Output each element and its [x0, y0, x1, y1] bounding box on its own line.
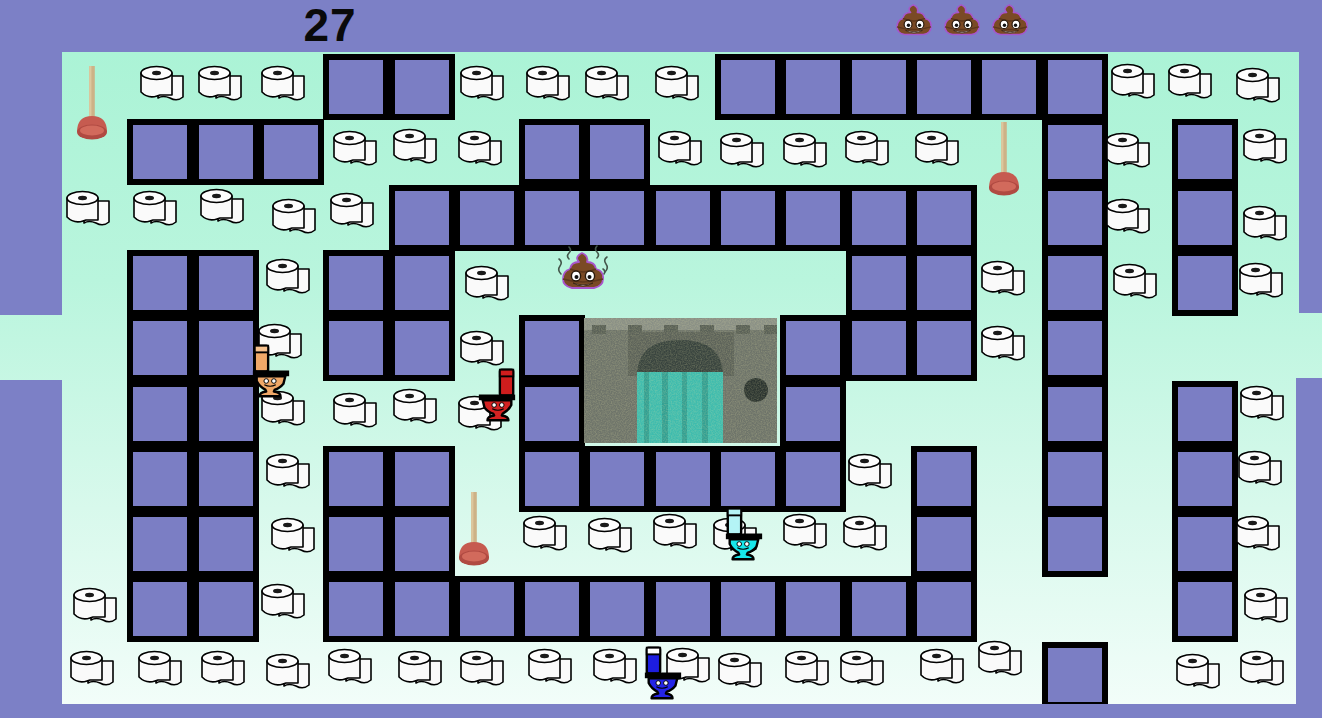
wall-block: [127, 315, 193, 381]
wall-block: [519, 381, 585, 447]
life-poop-icon: [943, 4, 981, 38]
wall-block: [193, 119, 259, 185]
wall-block: [519, 119, 585, 185]
toilet-paper-pellet: [782, 132, 828, 172]
game-screen: 27: [0, 0, 1322, 718]
wall-block: [519, 185, 585, 251]
toilet-paper-pellet: [1239, 650, 1285, 690]
toilet-paper-pellet: [197, 65, 243, 105]
toilet-paper-pellet: [1235, 515, 1281, 555]
enemy-cyan-toilet: [723, 505, 765, 562]
wall-block: [780, 576, 846, 642]
toilet-paper-pellet: [137, 650, 183, 690]
toilet-paper-pellet: [327, 648, 373, 688]
toilet-paper-pellet: [392, 388, 438, 428]
wall-block: [127, 446, 193, 512]
toilet-paper-pellet: [329, 192, 375, 232]
toilet-paper-pellet: [657, 130, 703, 170]
toilet-paper-pellet: [260, 65, 306, 105]
wall-block: [780, 315, 846, 381]
wall-block: [1172, 250, 1238, 316]
enemy-orange-toilet: [250, 342, 292, 399]
player-poop: [551, 243, 615, 299]
wall-block: [389, 315, 455, 381]
toilet-paper-pellet: [1105, 132, 1151, 172]
outer-wall-right: [1299, 52, 1322, 313]
toilet-paper-pellet: [652, 513, 698, 553]
ghost-house: [584, 318, 777, 443]
toilet-paper-pellet: [914, 130, 960, 170]
wall-block: [1042, 119, 1108, 185]
toilet-paper-pellet: [527, 648, 573, 688]
toilet-paper-pellet: [397, 650, 443, 690]
toilet-paper-pellet: [1242, 128, 1288, 168]
wall-block: [127, 381, 193, 447]
wall-block: [454, 576, 520, 642]
wall-block: [127, 119, 193, 185]
toilet-paper-pellet: [1110, 63, 1156, 103]
toilet-paper-pellet: [271, 198, 317, 238]
lives-counter: [895, 4, 1029, 38]
wall-block: [1042, 54, 1108, 120]
toilet-paper-pellet: [844, 130, 890, 170]
toilet-paper-pellet: [1112, 263, 1158, 303]
toilet-paper-pellet: [199, 188, 245, 228]
toilet-paper-pellet: [719, 132, 765, 172]
enemy-blue-toilet: [642, 644, 684, 701]
toilet-paper-pellet: [139, 65, 185, 105]
wall-block: [584, 446, 650, 512]
toilet-paper-pellet: [839, 650, 885, 690]
toilet-paper-pellet: [332, 392, 378, 432]
wall-block: [846, 576, 912, 642]
wall-block: [1172, 446, 1238, 512]
wall-block: [1042, 381, 1108, 447]
wall-block: [780, 381, 846, 447]
toilet-paper-pellet: [265, 258, 311, 298]
wall-block: [1172, 576, 1238, 642]
wall-block: [584, 119, 650, 185]
life-poop-icon: [895, 4, 933, 38]
wall-block: [846, 250, 912, 316]
toilet-paper-pellet: [1243, 587, 1289, 627]
toilet-paper-pellet: [459, 650, 505, 690]
toilet-paper-pellet: [654, 65, 700, 105]
wall-block: [911, 315, 977, 381]
life-poop-icon: [991, 4, 1029, 38]
wall-block: [584, 185, 650, 251]
toilet-paper-pellet: [270, 517, 316, 557]
wall-block: [127, 576, 193, 642]
wall-block: [715, 54, 781, 120]
toilet-paper-pellet: [587, 517, 633, 557]
toilet-paper-pellet: [782, 513, 828, 553]
wall-block: [389, 511, 455, 577]
toilet-paper-pellet: [1105, 198, 1151, 238]
toilet-paper-pellet: [464, 265, 510, 305]
toilet-paper-pellet: [1242, 205, 1288, 245]
wall-block: [193, 511, 259, 577]
toilet-paper-pellet: [265, 453, 311, 493]
toilet-paper-pellet: [392, 128, 438, 168]
wall-block: [911, 576, 977, 642]
score-display: 27: [270, 0, 390, 52]
wall-block: [1172, 381, 1238, 447]
toilet-paper-pellet: [265, 653, 311, 693]
wall-block: [780, 54, 846, 120]
toilet-paper-pellet: [457, 130, 503, 170]
wall-block: [519, 446, 585, 512]
toilet-paper-pellet: [784, 650, 830, 690]
wall-block: [389, 250, 455, 316]
plunger-powerup: [986, 120, 1022, 200]
plunger-powerup: [456, 490, 492, 570]
wall-block: [1042, 315, 1108, 381]
wall-block: [584, 576, 650, 642]
enemy-red-toilet: [476, 366, 518, 423]
wall-block: [519, 576, 585, 642]
outer-wall-left: [0, 380, 62, 704]
wall-block: [127, 250, 193, 316]
toilet-paper-pellet: [65, 190, 111, 230]
wall-block: [780, 446, 846, 512]
toilet-paper-pellet: [592, 648, 638, 688]
wall-block: [1042, 511, 1108, 577]
wall-block: [1172, 119, 1238, 185]
wall-block: [323, 511, 389, 577]
toilet-paper-pellet: [332, 130, 378, 170]
wall-block: [193, 250, 259, 316]
toilet-paper-pellet: [847, 453, 893, 493]
wall-block: [193, 315, 259, 381]
wall-block: [1172, 511, 1238, 577]
wall-block: [650, 446, 716, 512]
toilet-paper-pellet: [1175, 653, 1221, 693]
wall-block: [911, 54, 977, 120]
wall-block: [846, 54, 912, 120]
toilet-paper-pellet: [1238, 262, 1284, 302]
wall-block: [1042, 250, 1108, 316]
toilet-paper-pellet: [1239, 385, 1285, 425]
toilet-paper-pellet: [72, 587, 118, 627]
toilet-paper-pellet: [842, 515, 888, 555]
wall-block: [715, 576, 781, 642]
wall-block: [519, 315, 585, 381]
wall-block: [1042, 642, 1108, 708]
toilet-paper-pellet: [1237, 450, 1283, 490]
toilet-paper-pellet: [919, 648, 965, 688]
toilet-paper-pellet: [584, 65, 630, 105]
toilet-paper-pellet: [200, 650, 246, 690]
toilet-paper-pellet: [977, 640, 1023, 680]
wall-block: [780, 185, 846, 251]
wall-block: [911, 511, 977, 577]
wall-block: [911, 185, 977, 251]
wall-block: [258, 119, 324, 185]
wall-block: [193, 576, 259, 642]
wall-block: [389, 576, 455, 642]
wall-block: [1042, 446, 1108, 512]
wall-block: [323, 446, 389, 512]
wall-block: [127, 511, 193, 577]
wall-block: [454, 185, 520, 251]
toilet-paper-pellet: [260, 583, 306, 623]
toilet-paper-pellet: [459, 330, 505, 370]
toilet-paper-pellet: [1235, 67, 1281, 107]
plunger-powerup: [74, 64, 110, 144]
wall-block: [389, 54, 455, 120]
wall-block: [911, 250, 977, 316]
toilet-paper-pellet: [980, 325, 1026, 365]
wall-block: [193, 381, 259, 447]
wall-block: [323, 250, 389, 316]
wall-block: [846, 185, 912, 251]
toilet-paper-pellet: [522, 515, 568, 555]
wall-block: [650, 576, 716, 642]
toilet-paper-pellet: [717, 652, 763, 692]
wall-block: [846, 315, 912, 381]
toilet-paper-pellet: [1167, 63, 1213, 103]
outer-wall-right: [1296, 378, 1322, 704]
toilet-paper-pellet: [459, 65, 505, 105]
toilet-paper-pellet: [132, 190, 178, 230]
wall-block: [911, 446, 977, 512]
wall-block: [389, 185, 455, 251]
wall-block: [715, 185, 781, 251]
wall-block: [715, 446, 781, 512]
toilet-paper-pellet: [69, 650, 115, 690]
outer-wall-left: [0, 52, 62, 315]
wall-block: [1042, 185, 1108, 251]
wall-block: [389, 446, 455, 512]
wall-block: [323, 576, 389, 642]
wall-block: [323, 315, 389, 381]
wall-block: [1172, 185, 1238, 251]
wall-block: [323, 54, 389, 120]
toilet-paper-pellet: [980, 260, 1026, 300]
toilet-paper-pellet: [525, 65, 571, 105]
outer-wall-bottom: [0, 704, 1322, 718]
wall-block: [976, 54, 1042, 120]
wall-block: [650, 185, 716, 251]
wall-block: [193, 446, 259, 512]
